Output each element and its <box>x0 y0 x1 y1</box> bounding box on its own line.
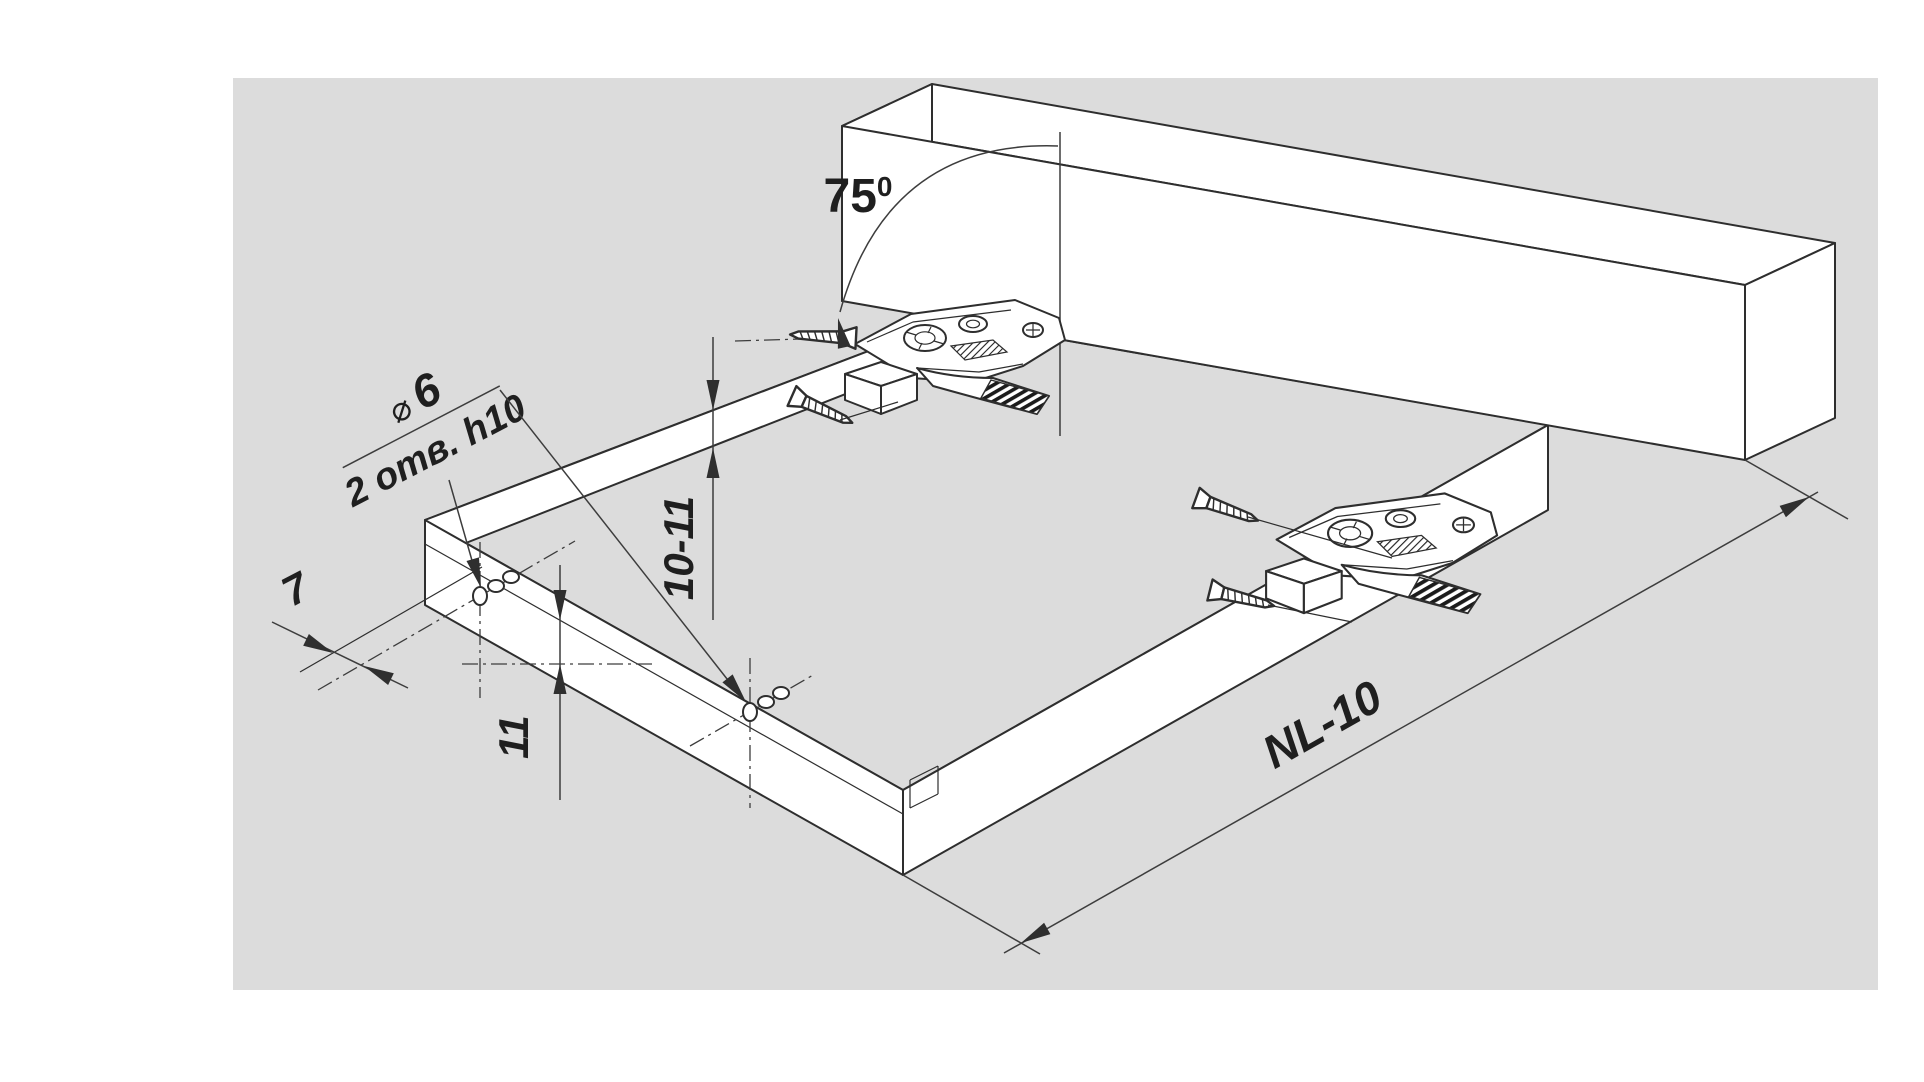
technical-drawing-page: 750 ⌀6 2 отв. h10 7 11 10-11 <box>0 0 1924 1082</box>
dim-11-label: 11 <box>490 715 537 759</box>
dim-10-11-label: 10-11 <box>655 496 702 600</box>
drawing-canvas: 750 ⌀6 2 отв. h10 7 11 10-11 <box>0 0 1924 1082</box>
